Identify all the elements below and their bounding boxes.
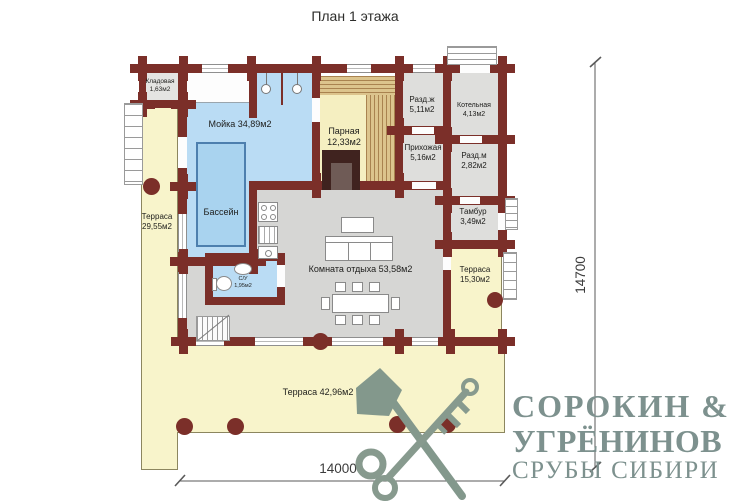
room-label-razd-m: Разд.м 2,82м2 <box>450 151 498 171</box>
room-name: Разд.м <box>450 151 498 161</box>
kitchen-sink <box>258 246 278 259</box>
logo-line1: СОРОКИН & <box>512 390 730 422</box>
terrace-pillar <box>143 178 160 195</box>
room-name: Прихожая <box>400 143 446 153</box>
door-opening <box>312 98 320 122</box>
floor-plan-page: План 1 этажа <box>0 0 753 502</box>
door-opening <box>455 64 495 73</box>
kitchen-cabinet <box>258 226 278 244</box>
chair <box>391 297 400 310</box>
sofa-back-line <box>326 242 392 243</box>
dimension-width-label: 14000 <box>305 461 371 476</box>
log-joint <box>239 56 264 81</box>
log-joint <box>171 329 196 354</box>
room-label-kotelnaya: Котельная 4,13м2 <box>450 102 498 120</box>
room-label-kladovaya: Кладовая 1,63м2 <box>141 78 179 94</box>
room-area: 2,82м2 <box>450 161 498 171</box>
window <box>347 64 371 73</box>
room-label-parnaya: Парная 12,33м2 <box>318 126 370 149</box>
key-bow-ring <box>375 478 395 498</box>
window <box>410 337 440 346</box>
page-title: План 1 этажа <box>230 8 480 24</box>
sofa <box>325 236 393 261</box>
chair <box>321 297 330 310</box>
room-name: С/У <box>220 276 266 283</box>
sauna-bench-top <box>320 76 396 95</box>
pool-basin <box>196 142 246 247</box>
log-joint <box>171 174 196 199</box>
sofa-divider <box>370 242 371 260</box>
logo-line3: СРУБЫ СИБИРИ <box>512 458 719 483</box>
window <box>332 337 383 346</box>
log-joint <box>435 232 460 257</box>
terrace-pillar <box>227 418 244 435</box>
room-label-prihozhaya: Прихожая 5,16м2 <box>400 143 446 163</box>
log-joint <box>387 329 412 354</box>
room-label-lounge: Комната отдыха 53,58м2 <box>288 264 433 275</box>
room-label-moyka: Мойка 34,89м2 <box>180 119 300 130</box>
room-label-razd-zh: Разд.ж 5,11м2 <box>400 95 444 115</box>
chair <box>335 315 346 325</box>
sink-bowl <box>265 250 272 257</box>
log-joint <box>171 249 196 274</box>
log-joint <box>171 92 196 117</box>
room-name: Парная <box>318 126 370 137</box>
dimension-height-label: 14700 <box>573 242 589 308</box>
room-area: 15,30м2 <box>450 275 500 285</box>
burner-icon <box>261 205 267 211</box>
room-label-su: С/У 1,95м2 <box>220 276 266 290</box>
sofa-divider <box>348 242 349 260</box>
shower-divider <box>281 73 283 105</box>
log-joint <box>387 173 412 198</box>
tambur-steps <box>505 198 518 230</box>
coffee-table <box>341 217 374 233</box>
door-opening <box>277 265 285 287</box>
cooktop-icon <box>258 202 278 222</box>
room-area: 5,11м2 <box>400 105 444 115</box>
dimension-bottom <box>175 475 510 486</box>
log-joint <box>490 127 515 152</box>
room-area: 5,16м2 <box>400 153 446 163</box>
chair <box>369 315 380 325</box>
terrace-left-floor <box>141 108 178 470</box>
log-joint <box>438 329 463 354</box>
wall-segment <box>205 297 285 305</box>
log-joint <box>387 118 412 143</box>
chair <box>352 315 363 325</box>
door-opening <box>410 182 436 189</box>
room-area: 4,13м2 <box>450 111 498 120</box>
stairs <box>196 316 230 341</box>
room-label-bassein: Бассейн <box>196 207 246 218</box>
window <box>255 337 303 346</box>
door-opening <box>458 136 482 143</box>
room-area: 1,95м2 <box>220 283 266 290</box>
room-area: 3,49м2 <box>448 217 498 227</box>
room-area: 1,63м2 <box>141 86 179 94</box>
room-name: Терраса <box>450 265 500 275</box>
terrace-pillar <box>389 416 406 433</box>
room-label-terrace-left: Терраса 29,55м2 <box>134 212 180 232</box>
room-area: 12,33м2 <box>318 137 370 148</box>
room-name: Котельная <box>450 102 498 111</box>
log-joint <box>387 56 412 81</box>
terrace-pillar <box>176 418 193 435</box>
terrace-pillar <box>439 416 456 433</box>
chair <box>369 282 380 292</box>
chair <box>352 282 363 292</box>
room-name: Кладовая <box>141 78 179 86</box>
log-joint <box>490 329 515 354</box>
room-name: Разд.ж <box>400 95 444 105</box>
entrance-steps <box>447 46 497 65</box>
burner-icon <box>261 214 267 220</box>
sauna-stove-door <box>331 163 352 190</box>
logo-line2: УГРЁНИНОВ <box>512 425 722 457</box>
shower-head <box>292 84 302 94</box>
dining-table <box>332 294 389 313</box>
burner-icon <box>270 214 276 220</box>
room-label-terrace-right: Терраса 15,30м2 <box>450 265 500 285</box>
room-label-tambur: Тамбур 3,49м2 <box>448 207 498 227</box>
window <box>178 272 187 318</box>
room-name: Тамбур <box>448 207 498 217</box>
log-joint <box>304 56 329 81</box>
terrace-steps <box>124 103 143 185</box>
terrace-steps <box>503 252 517 300</box>
shower-head <box>261 84 271 94</box>
burner-icon <box>270 205 276 211</box>
round-column <box>312 333 329 350</box>
room-name: Терраса <box>134 212 180 222</box>
sink-icon <box>234 263 252 275</box>
chair <box>335 282 346 292</box>
window <box>202 64 228 73</box>
terrace-pillar <box>487 292 503 308</box>
room-area: 29,55м2 <box>134 222 180 232</box>
room-label-terrace-bottom: Терраса 42,96м2 <box>268 387 368 398</box>
door-opening <box>178 137 187 168</box>
